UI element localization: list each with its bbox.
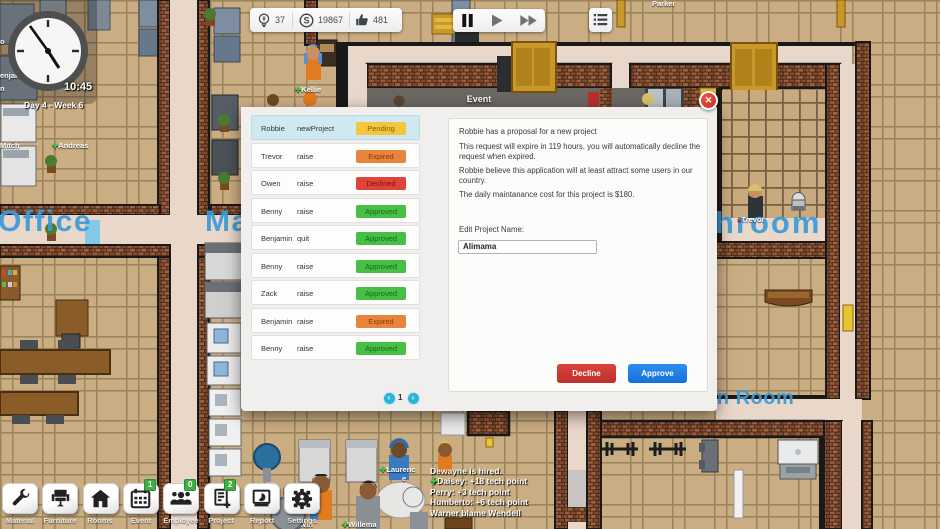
svg-text:S: S	[304, 15, 310, 25]
svg-text:Office: Office	[0, 205, 92, 238]
